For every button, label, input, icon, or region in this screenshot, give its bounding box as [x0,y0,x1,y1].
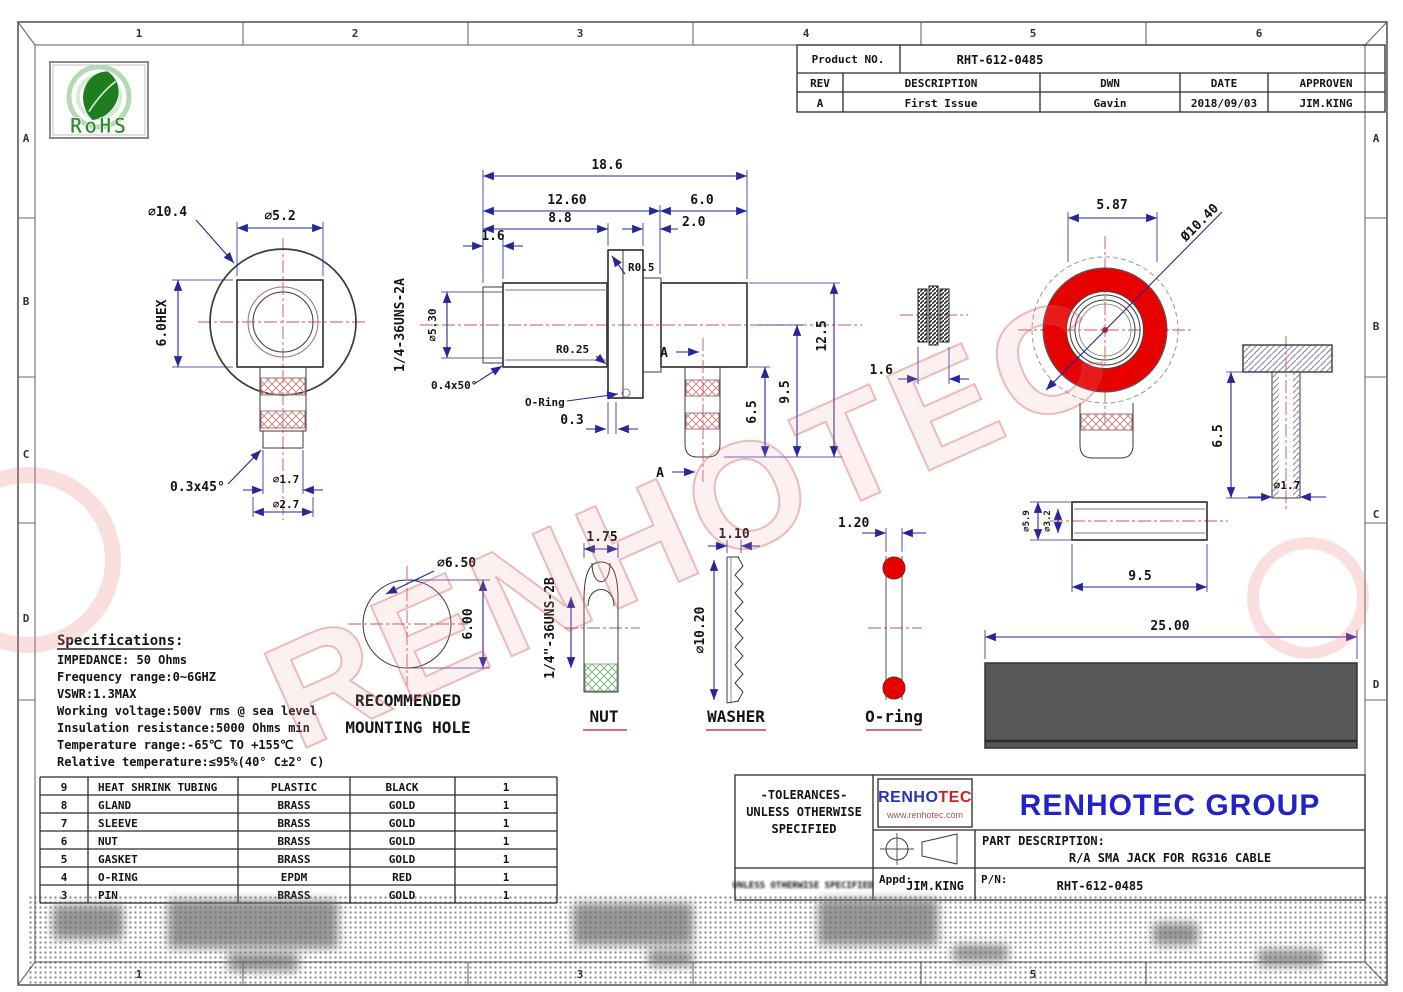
dim-label: 25.00 [1150,619,1189,634]
dim-label: R0.5 [628,261,655,274]
rev-value: A [817,97,824,110]
approven-value: JIM.KING [1300,97,1353,110]
dim-label: ⌀3.2 [1043,510,1053,532]
part-description-label: PART DESCRIPTION: [982,834,1105,848]
thread-spec-label: 1/4-36UNS-2A [393,278,408,372]
item-no: 6 [61,835,68,848]
material: BRASS [277,799,310,812]
part-name: GASKET [98,853,138,866]
part-name: O-RING [98,871,138,884]
table-row: 5 GASKET BRASS GOLD 1 [61,853,510,866]
view-flange-front: ⌀5.2 ⌀10.4 6.0HEX 0.3x45° ⌀1.7 ⌀2.7 [148,205,368,520]
view-oring: 1.20 O-ring [838,516,926,730]
view-sleeve: ⌀5.9 ⌀3.2 9.5 [1022,502,1228,592]
dim-label: ⌀10.4 [148,205,187,220]
zone-letter: C [23,448,30,461]
item-no: 8 [61,799,68,812]
zone-letter: D [1373,678,1380,691]
blur-blob [53,905,123,939]
zone-number: 5 [1030,27,1037,40]
dim-label: 12.60 [547,193,586,208]
revision-table: Product NO. RHT-612-0485 REV DESCRIPTION… [797,45,1385,112]
qty: 1 [503,817,510,830]
blurred-note: UNLESS OTHERWISE SPECIFIED [733,881,874,891]
title-block: -TOLERANCES- UNLESS OTHERWISE SPECIFIED … [733,775,1365,900]
finish: GOLD [389,817,416,830]
finish: GOLD [389,835,416,848]
qty: 1 [503,835,510,848]
dim-label: 0.3 [560,413,583,428]
zone-letter: C [1373,508,1380,521]
drawing-sheet: 1 2 3 4 5 6 1 3 5 A B C D A B C D RoHS [0,0,1403,992]
dim-label: ⌀5.9 [1022,510,1032,532]
dim-label: ⌀5.30 [426,308,439,341]
spec-line: Frequency range:0~6GHZ [57,670,216,684]
part-name: SLEEVE [98,817,138,830]
dim-label: 8.8 [548,211,572,226]
qty: 1 [503,871,510,884]
zone-number: 1 [136,27,143,40]
part-name: NUT [98,835,118,848]
tolerances-line: SPECIFIED [771,822,836,836]
blur-blob [953,945,1008,961]
material: BRASS [277,835,310,848]
spec-line: Insulation resistance:5000 Ohms min [57,721,310,735]
zone-letter: A [1373,132,1380,145]
table-row: 7 SLEEVE BRASS GOLD 1 [61,817,510,830]
table-row: 8 GLAND BRASS GOLD 1 [61,799,510,812]
dim-label: ⌀2.7 [273,498,300,511]
view-caption: O-ring [865,707,923,726]
dim-label: 6.0 [690,193,714,208]
product-no-value: RHT-612-0485 [957,53,1044,67]
dim-label: ⌀10.20 [693,606,708,653]
view-pin-detail: 6.5 ⌀1.7 [1211,336,1332,512]
part-name: GLAND [98,799,131,812]
tolerances-line: UNLESS OTHERWISE [746,805,862,819]
table-row: 6 NUT BRASS GOLD 1 [61,835,510,848]
view-caption: NUT [590,707,619,726]
table-row: 4 O-RING EPDM RED 1 [61,871,510,884]
company-name: RENHOTEC GROUP [1020,789,1321,822]
blur-blob [1153,923,1198,945]
renhotec-logo: RENHOTEC www.renhotec.com [878,779,972,827]
dim-label: R0.25 [556,343,589,356]
spec-line: Relative temperature:≤95%(40° C±2° C) [57,755,324,769]
dim-label: 2.0 [682,215,706,230]
description-value: First Issue [905,97,978,110]
watermark-arc [0,475,113,645]
spec-line: Temperature range:-65℃ TO +155℃ [57,738,293,752]
zone-number: 4 [803,27,810,40]
zone-letter: A [23,132,30,145]
dim-label: ⌀1.7 [273,473,300,486]
spec-line: IMPEDANCE: 50 Ohms [57,653,187,667]
dim-label: 6.5 [1211,424,1226,447]
blur-blob [818,899,938,945]
zone-letter: B [1373,320,1380,333]
zone-number: 3 [577,27,584,40]
material: EPDM [281,871,308,884]
item-no: 7 [61,817,68,830]
pn-label: P/N: [981,873,1008,886]
appd-value: JIM.KING [906,879,964,893]
zone-number: 2 [352,27,359,40]
table-row: 9 HEAT SHRINK TUBING PLASTIC BLACK 1 [61,781,510,794]
section-marker: A [660,346,668,361]
dim-label: 12.5 [815,320,830,351]
material: BRASS [277,817,310,830]
tolerances-line: -TOLERANCES- [761,788,848,802]
dim-label: 9.5 [1128,569,1151,584]
finish: GOLD [389,799,416,812]
part-name: HEAT SHRINK TUBING [98,781,218,794]
dim-label: 6.0HEX [155,299,170,346]
dim-label: 5.87 [1096,198,1127,213]
dwn-header: DWN [1100,77,1120,90]
zone-letter: B [23,295,30,308]
rohs-label: RoHS [70,114,129,138]
qty: 1 [503,799,510,812]
date-value: 2018/09/03 [1191,97,1257,110]
finish: RED [392,871,412,884]
qty: 1 [503,781,510,794]
item-no: 5 [61,853,68,866]
approven-header: APPROVEN [1300,77,1353,90]
blur-blob [648,950,693,966]
part-description-value: R/A SMA JACK FOR RG316 CABLE [1069,851,1271,865]
logo-text-red: TEC [938,789,972,806]
dim-label: ⌀1.7 [1274,479,1301,492]
logo-text-blue: RENHO [878,789,938,806]
dim-label: 1.6 [481,229,505,244]
finish: BLACK [385,781,418,794]
pn-value: RHT-612-0485 [1057,879,1144,893]
parts-list-table: 9 HEAT SHRINK TUBING PLASTIC BLACK 1 8 G… [40,777,557,903]
view-caption: WASHER [707,707,765,726]
spec-line: VSWR:1.3MAX [57,687,137,701]
censored-region [28,895,1388,985]
svg-text:RENHOTEC: RENHOTEC [878,789,972,806]
rohs-logo: RoHS [50,62,148,138]
item-no: 9 [61,781,68,794]
dwn-value: Gavin [1093,97,1126,110]
zone-letter: D [23,612,30,625]
blur-blob [168,900,338,948]
item-no: 4 [61,871,68,884]
oring-note: O-Ring [525,396,565,409]
dim-label: Ø10.40 [1178,201,1223,246]
finish: GOLD [389,853,416,866]
blur-blob [1258,950,1323,966]
date-header: DATE [1211,77,1238,90]
projection-symbol [880,833,957,865]
dim-label: 0.3x45° [170,480,225,495]
logo-url: www.renhotec.com [886,810,963,820]
view-heat-shrink-tubing: 25.00 [985,619,1357,748]
dim-label: ⌀5.2 [264,209,295,224]
rev-header: REV [810,77,830,90]
blur-blob [228,953,298,971]
engineering-drawing-canvas: 1 2 3 4 5 6 1 3 5 A B C D A B C D RoHS [0,0,1403,992]
product-no-label: Product NO. [812,53,885,66]
dim-label: 18.6 [591,158,622,173]
material: BRASS [277,853,310,866]
zone-number: 6 [1256,27,1263,40]
qty: 1 [503,853,510,866]
material: PLASTIC [271,781,317,794]
dim-label: 0.4x50° [431,379,477,392]
description-header: DESCRIPTION [905,77,978,90]
blur-blob [573,903,693,945]
